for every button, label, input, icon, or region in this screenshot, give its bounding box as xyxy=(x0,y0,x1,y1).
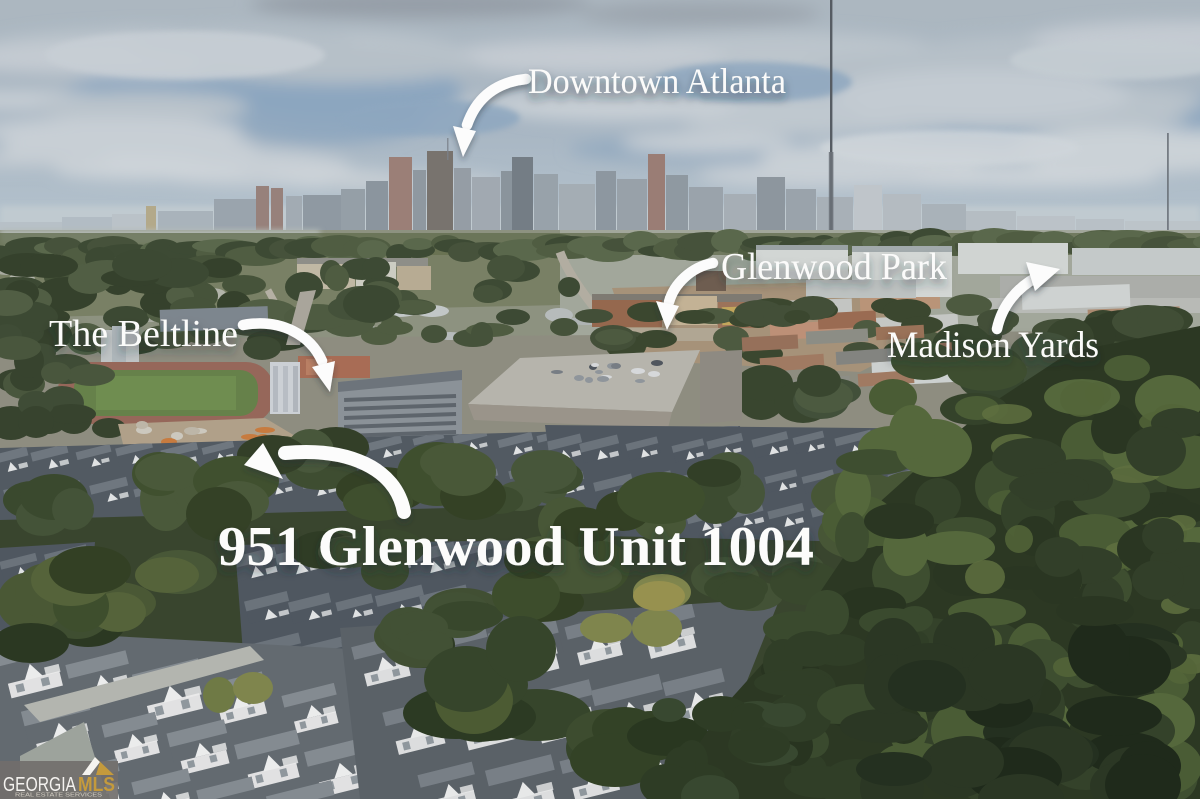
svg-text:The Beltline: The Beltline xyxy=(49,313,238,355)
svg-text:951 Glenwood Unit 1004: 951 Glenwood Unit 1004 xyxy=(218,516,814,578)
svg-text:Downtown Atlanta: Downtown Atlanta xyxy=(528,61,786,101)
svg-text:Glenwood Park: Glenwood Park xyxy=(721,246,947,288)
svg-text:Madison Yards: Madison Yards xyxy=(887,325,1099,366)
svg-text:REAL ESTATE SERVICES: REAL ESTATE SERVICES xyxy=(15,793,102,799)
